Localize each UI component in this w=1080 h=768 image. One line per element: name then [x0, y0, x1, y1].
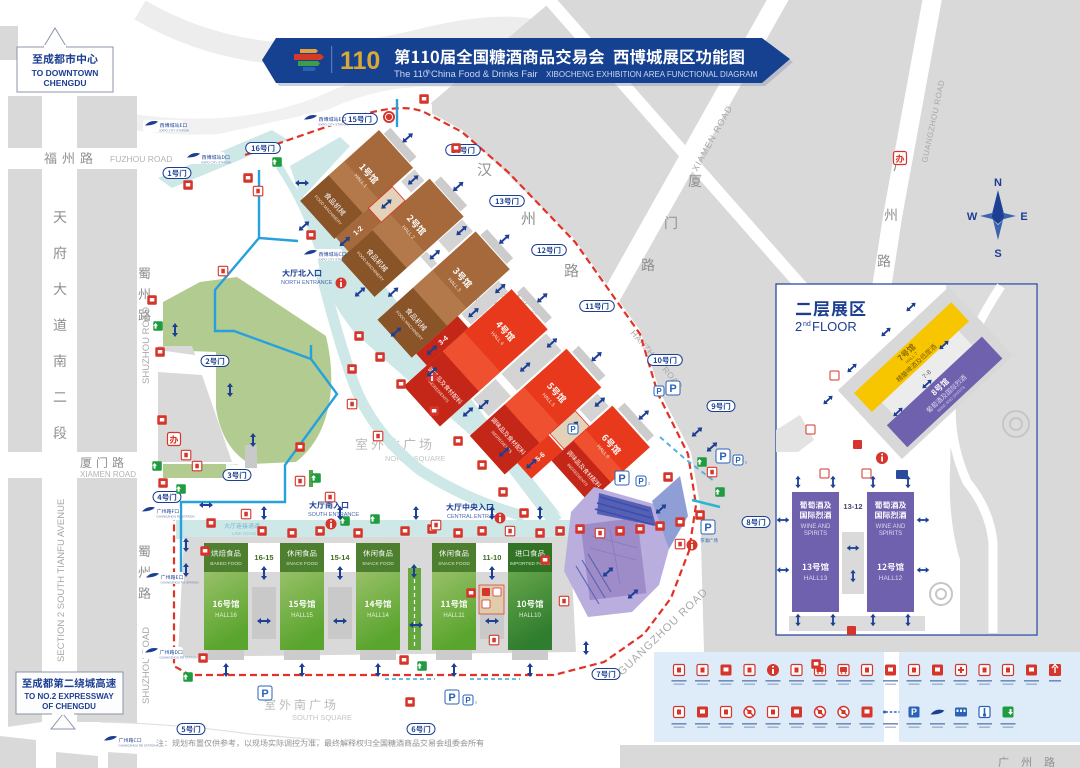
svg-text:S: S: [994, 248, 1001, 260]
svg-text:W: W: [967, 211, 978, 223]
svg-text:11-10: 11-10: [483, 553, 502, 562]
svg-text:15-14: 15-14: [330, 553, 350, 562]
svg-text:₁: ₁: [475, 699, 477, 705]
svg-text:SOUTH SQUARE: SOUTH SQUARE: [292, 713, 352, 722]
svg-text:BAKED FOOD: BAKED FOOD: [210, 561, 242, 567]
svg-text:2: 2: [795, 319, 802, 334]
svg-text:SPIRITS: SPIRITS: [804, 531, 827, 537]
svg-text:P: P: [704, 522, 711, 534]
svg-text:GUANGZHOU RD STATION: GUANGZHOU RD STATION: [160, 656, 198, 660]
svg-text:nd: nd: [803, 321, 811, 328]
svg-text:P: P: [719, 451, 726, 463]
svg-text:SOUTH ENTRANCE: SOUTH ENTRANCE: [308, 512, 359, 518]
svg-text:LINK ROAD: LINK ROAD: [232, 531, 257, 536]
svg-text:SPIRITS: SPIRITS: [879, 531, 902, 537]
svg-text:110: 110: [340, 47, 380, 75]
svg-text:P: P: [735, 456, 741, 465]
svg-text:China Food & Drinks Fair: China Food & Drinks Fair: [431, 69, 538, 80]
svg-text:SHUZHOU ROAD: SHUZHOU ROAD: [141, 627, 152, 704]
svg-text:EXPO CITY STATION: EXPO CITY STATION: [319, 258, 348, 262]
svg-text:EXPO CITY STATION: EXPO CITY STATION: [319, 123, 348, 127]
svg-text:P: P: [465, 696, 471, 705]
svg-text:SECTION 2 SOUTH TIANFU AVENUE: SECTION 2 SOUTH TIANFU AVENUE: [56, 499, 67, 662]
svg-text:GUANGZHOU RD STATION: GUANGZHOU RD STATION: [161, 581, 199, 585]
svg-text:HALL13: HALL13: [804, 575, 828, 582]
svg-text:P: P: [669, 383, 676, 395]
svg-text:WINE AND: WINE AND: [801, 524, 831, 530]
svg-text:HALL11: HALL11: [443, 613, 465, 619]
svg-text:13-12: 13-12: [843, 502, 862, 511]
svg-text:P: P: [261, 688, 268, 700]
svg-text:N: N: [994, 177, 1002, 189]
svg-text:P: P: [638, 477, 644, 486]
svg-text:₁: ₁: [648, 480, 650, 486]
svg-text:TO NO.2 EXPRESSWAY: TO NO.2 EXPRESSWAY: [24, 692, 114, 701]
svg-text:GUANGZHOU RD STATION: GUANGZHOU RD STATION: [157, 515, 195, 519]
svg-text:EXPO CITY STATION: EXPO CITY STATION: [202, 161, 231, 165]
svg-text:P: P: [911, 707, 917, 717]
svg-text:CHENGDU: CHENGDU: [44, 78, 87, 88]
svg-text:NORTH ENTRANCE: NORTH ENTRANCE: [281, 280, 333, 286]
svg-text:HALL14: HALL14: [367, 613, 389, 619]
svg-text:OF CHENGDU: OF CHENGDU: [42, 702, 96, 711]
svg-text:P: P: [656, 387, 662, 396]
svg-text:EXPO CITY STATION: EXPO CITY STATION: [160, 129, 189, 133]
svg-text:P: P: [618, 473, 625, 485]
svg-text:SNACK FOOD: SNACK FOOD: [438, 561, 470, 567]
svg-text:FLOOR: FLOOR: [812, 319, 857, 334]
svg-text:FUZHOU ROAD: FUZHOU ROAD: [110, 154, 172, 164]
svg-text:th: th: [426, 70, 431, 76]
svg-text:HALL16: HALL16: [215, 613, 237, 619]
svg-text:16-15: 16-15: [254, 553, 273, 562]
svg-text:SNACK FOOD: SNACK FOOD: [362, 561, 394, 567]
svg-text:HALL10: HALL10: [519, 613, 541, 619]
svg-text:P: P: [448, 692, 455, 704]
svg-text:WINE AND: WINE AND: [876, 524, 906, 530]
svg-text:XIBOCHENG EXHIBITION AREA FUNC: XIBOCHENG EXHIBITION AREA FUNCTIONAL DIA…: [546, 70, 758, 79]
svg-text:HALL15: HALL15: [291, 613, 313, 619]
svg-text:P: P: [570, 425, 576, 434]
svg-text:HALL12: HALL12: [879, 575, 903, 582]
svg-text:SNACK FOOD: SNACK FOOD: [286, 561, 318, 567]
svg-text:E: E: [1020, 211, 1027, 223]
svg-text:₁: ₁: [745, 459, 747, 465]
svg-text:GUANGZHOU RD STATION: GUANGZHOU RD STATION: [119, 744, 157, 748]
svg-text:SHUZHOU ROAD: SHUZHOU ROAD: [141, 307, 152, 384]
svg-text:XIAMEN ROAD: XIAMEN ROAD: [80, 470, 136, 479]
svg-text:TO DOWNTOWN: TO DOWNTOWN: [32, 68, 99, 78]
svg-text:The 110: The 110: [394, 69, 428, 80]
